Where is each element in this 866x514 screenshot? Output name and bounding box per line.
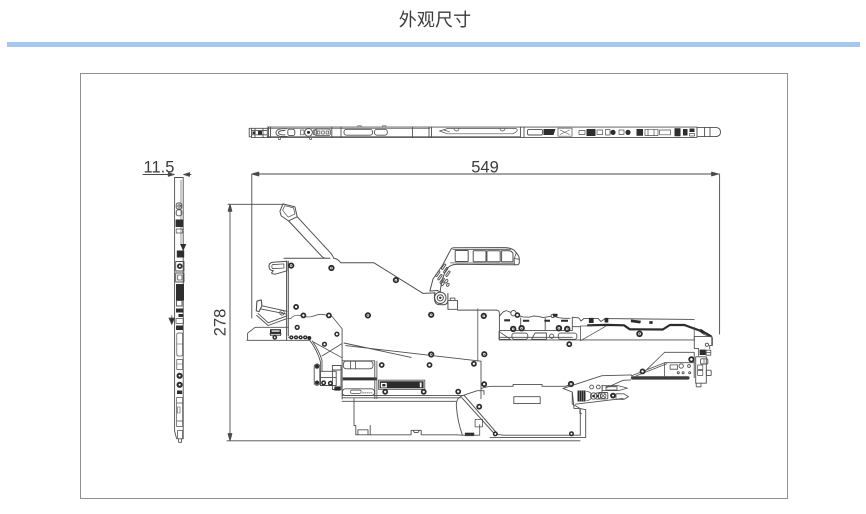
svg-text:278: 278 <box>212 309 230 337</box>
